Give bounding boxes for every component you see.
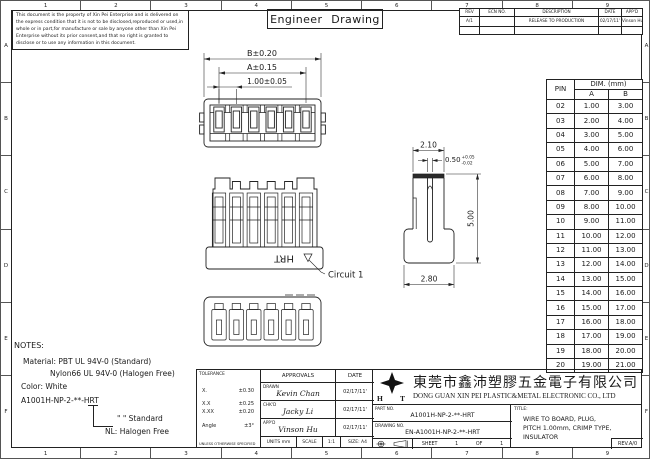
pin-cell: 3.00 <box>609 100 643 114</box>
revision-empty-row <box>460 27 643 35</box>
pin-cell: 9.00 <box>575 215 609 229</box>
grid-label: 6 <box>362 448 432 459</box>
pin-cell: 17.00 <box>609 301 643 315</box>
date-heading: DATE <box>336 370 374 383</box>
pin-row: 109.0011.00 <box>547 215 643 229</box>
pin-cell: 6.00 <box>609 143 643 157</box>
marking-triangle-icon <box>304 254 312 262</box>
tolerance-box: TOLERANCE X.±0.30 X.X±0.25 X.XX±0.20 Ang… <box>196 369 261 448</box>
revision-cell: RELEASE TO PRODUCTION <box>515 17 599 27</box>
tol-label: X.X <box>202 401 210 407</box>
side-view <box>404 174 454 263</box>
grid-label: C <box>1 156 11 229</box>
revision-cell: A/1 <box>460 17 480 27</box>
grid-label: 2 <box>81 1 151 10</box>
drawing-no-label: DRAWING NO. <box>375 423 404 428</box>
part-no-label: PART NO. <box>375 406 394 411</box>
dim-side-top-width: 2.10 <box>420 141 437 150</box>
grid-label: D <box>1 230 11 303</box>
pin-cell: 15.00 <box>609 272 643 286</box>
connector-drawing: HRT Circuit 1 <box>141 41 551 381</box>
pin-cell: 18.00 <box>609 315 643 329</box>
approval-role: APP'D <box>263 420 275 425</box>
title-line: INSULATOR <box>523 434 558 441</box>
part-code-callout-line <box>93 405 113 427</box>
pin-row: 098.0010.00 <box>547 200 643 214</box>
pin-row: 1110.0012.00 <box>547 229 643 243</box>
note-color: Color: White <box>21 382 67 391</box>
pin-row: 032.004.00 <box>547 114 643 128</box>
grid-ruler-left: A B C D E F <box>1 10 11 448</box>
pin-cell: 12.00 <box>609 229 643 243</box>
approval-row-appd: APP'D Vinson Hu <box>261 419 336 437</box>
approval-role: DRAWN <box>263 384 279 389</box>
dim-side-slot-tol-minus: -0.02 <box>462 161 473 167</box>
dim-header: DIM. (mm) <box>575 80 643 90</box>
size-cell: SIZE: A4 <box>341 437 374 448</box>
company-logo-star-icon <box>380 372 404 394</box>
revision-cell <box>480 27 515 35</box>
revision-header-row: REV ECN NO. DESCRIPTION DATE APP'D <box>460 9 643 17</box>
dim-side-bottom-width: 2.80 <box>421 275 438 284</box>
dim-side-slot-tol-plus: +0.05 <box>462 155 475 161</box>
tol-value: ±0.25 <box>239 401 254 407</box>
pin-row: 1918.0020.00 <box>547 344 643 358</box>
pin-cell: 3.00 <box>575 128 609 142</box>
company-box: H T 東莞市鑫沛塑膠五金電子有限公司 DONG GUAN XIN PEI PL… <box>372 369 642 405</box>
units-cell: UNITS mm <box>261 437 297 448</box>
approval-role: CHK'D <box>263 402 276 407</box>
part-no-value: A1001H-NP-2-**-HRT <box>373 412 512 419</box>
revision-cell <box>599 27 622 35</box>
tolerance-row: Angle±3° <box>202 423 254 429</box>
front-view <box>200 99 326 147</box>
title-label: TITLE: <box>514 407 528 412</box>
notes-heading: NOTES: <box>14 341 44 350</box>
tol-value: ±0.20 <box>239 409 254 415</box>
note-option-halogen: NL: Halogen Free <box>105 427 169 436</box>
grid-label: B <box>1 83 11 156</box>
approval-signature: Jacky Li <box>261 407 335 416</box>
pin-cell: 16.00 <box>575 315 609 329</box>
grid-label: 9 <box>573 448 642 459</box>
of-label: OF <box>476 442 483 447</box>
drawing-sheet: 1 2 3 4 5 6 7 8 9 1 2 3 4 5 6 7 8 9 A B … <box>0 0 650 459</box>
pin-cell: 13.00 <box>609 243 643 257</box>
grid-label: E <box>642 303 650 376</box>
pin-cell: 8.00 <box>609 171 643 185</box>
drawing-no-row: DRAWING NO. EN-A1001H-NP-2-**-HRT <box>373 422 512 439</box>
revision-cell <box>622 27 643 35</box>
logo-letter-h: H <box>377 394 383 403</box>
revision-cell: Vinson Hu <box>622 17 643 27</box>
revision-cell <box>480 17 515 27</box>
dim-front-overall: B±0.20 <box>247 49 277 58</box>
tolerance-row: X.±0.30 <box>202 388 254 394</box>
pin-row: 1716.0018.00 <box>547 315 643 329</box>
pin-cell: 19.00 <box>609 330 643 344</box>
pin-row: 065.007.00 <box>547 157 643 171</box>
pin-cell: 16.00 <box>609 287 643 301</box>
page-title: Engineer Drawing <box>267 9 383 29</box>
sheet-cell: SHEET 1 OF 1 <box>413 439 512 449</box>
grid-label: A <box>642 10 650 83</box>
company-name-en: DONG GUAN XIN PEI PLASTIC&METAL ELECTRON… <box>413 392 616 400</box>
pin-cell: 11.00 <box>575 243 609 257</box>
pin-cell: 7.00 <box>609 157 643 171</box>
tol-label: X. <box>202 388 207 394</box>
pin-cell: 4.00 <box>575 143 609 157</box>
tolerance-footer: UNLESS OTHERWISE SPECIFIED <box>199 442 255 446</box>
pin-cell: 7.00 <box>575 186 609 200</box>
logo-letter-t: T <box>400 394 405 403</box>
pin-cell: 5.00 <box>609 128 643 142</box>
pin-cell: 18.00 <box>575 344 609 358</box>
pin-row: 1817.0019.00 <box>547 330 643 344</box>
revision-header: REV <box>460 9 480 17</box>
projection-cell <box>373 439 413 449</box>
tol-label: Angle <box>202 423 216 429</box>
pin-row: 043.005.00 <box>547 128 643 142</box>
marking-text: HRT <box>273 253 294 264</box>
title-line: WIRE TO BOARD, PLUG, <box>523 416 596 423</box>
title-line: PITCH 1.00mm, CRIMP TYPE, <box>523 425 611 432</box>
approvals-box: APPROVALS DATE DRAWN Kevin Chan 02/17/11… <box>260 369 373 448</box>
approval-signature: Vinson Hu <box>261 425 335 434</box>
pin-row: 1312.0014.00 <box>547 258 643 272</box>
tolerance-heading: TOLERANCE <box>199 372 225 377</box>
approval-date: 02/17/11' <box>336 401 374 419</box>
revision-table: REV ECN NO. DESCRIPTION DATE APP'D A/1 R… <box>459 8 643 35</box>
pin-row: 076.008.00 <box>547 171 643 185</box>
pin-row: 1514.0016.00 <box>547 287 643 301</box>
col-a-header: A <box>575 90 609 100</box>
grid-label: 8 <box>503 448 573 459</box>
pin-cell: 10.00 <box>609 200 643 214</box>
approval-date: 02/17/11' <box>336 383 374 401</box>
dim-front-pitch: 1.00±0.05 <box>247 77 287 86</box>
grid-label: F <box>642 376 650 448</box>
pin-cell: 11.00 <box>609 215 643 229</box>
col-b-header: B <box>609 90 643 100</box>
revision-cell <box>460 27 480 35</box>
revision-cell: 02/17/11' <box>599 17 622 27</box>
revision-cell <box>515 27 599 35</box>
pin-cell: 14.00 <box>609 258 643 272</box>
tolerance-row: X.X±0.25 <box>202 401 254 407</box>
revision-row: A/1 RELEASE TO PRODUCTION 02/17/11' Vins… <box>460 17 643 27</box>
revision-header: ECN NO. <box>480 9 515 17</box>
dimensions: B±0.20 A±0.15 1.00±0.05 2.10 0.50 +0.05 … <box>204 49 481 288</box>
pin-header-row: PIN DIM. (mm) <box>547 80 643 90</box>
note-material: Material: PBT UL 94V-0 (Standard) <box>23 357 151 366</box>
pin-row: 054.006.00 <box>547 143 643 157</box>
note-part-code: A1001H-NP-2-**-HRT <box>21 396 99 405</box>
bottom-view <box>204 295 321 346</box>
revision-header: DATE <box>599 9 622 17</box>
tol-value: ±0.30 <box>239 388 254 394</box>
grid-label: A <box>1 10 11 83</box>
grid-label: B <box>642 83 650 156</box>
drawing-title-box: TITLE: WIRE TO BOARD, PLUG, PITCH 1.00mm… <box>510 404 642 448</box>
revision-header: DESCRIPTION <box>515 9 599 17</box>
pin-cell: 9.00 <box>609 186 643 200</box>
company-name-cn: 東莞市鑫沛塑膠五金電子有限公司 <box>413 372 638 392</box>
scale-value: 1:1 <box>323 437 341 448</box>
grid-label: C <box>642 156 650 229</box>
part-no-row: PART NO. A1001H-NP-2-**-HRT <box>373 405 512 422</box>
rev-box: REV.A/0 <box>611 438 643 449</box>
tol-label: X.XX <box>202 409 214 415</box>
pin-cell: 2.00 <box>575 114 609 128</box>
drawing-no-value: EN-A1001H-NP-2-**-HRT <box>373 429 512 436</box>
part-number-box: PART NO. A1001H-NP-2-**-HRT DRAWING NO. … <box>372 404 511 448</box>
scale-label: SCALE <box>297 437 323 448</box>
revision-header: APP'D <box>622 9 643 17</box>
sheet-number: 1 <box>455 442 458 447</box>
pin-row: 021.003.00 <box>547 100 643 114</box>
hrt-marking: HRT <box>273 253 294 264</box>
grid-ruler-right: A B C D E F <box>642 10 650 448</box>
grid-label: 2 <box>81 448 151 459</box>
dim-side-slot: 0.50 <box>445 156 461 164</box>
dim-side-height: 5.00 <box>467 210 476 227</box>
dim-front-inner: A±0.15 <box>247 63 277 72</box>
approval-signature: Kevin Chan <box>261 389 335 398</box>
approval-row-chkd: CHK'D Jacky Li <box>261 401 336 419</box>
pin-cell: 14.00 <box>575 287 609 301</box>
note-material-2: Nylon66 UL 94V-0 (Halogen Free) <box>50 369 175 378</box>
pin-cell: 5.00 <box>575 157 609 171</box>
circuit-label: Circuit 1 <box>328 271 363 281</box>
grid-label: 5 <box>292 448 362 459</box>
grid-label: 3 <box>151 448 221 459</box>
approvals-heading: APPROVALS <box>261 370 336 383</box>
grid-label: F <box>1 376 11 448</box>
pin-cell: 4.00 <box>609 114 643 128</box>
approval-row-drawn: DRAWN Kevin Chan <box>261 383 336 401</box>
approval-date: 02/17/11' <box>336 419 374 437</box>
pin-cell: 1.00 <box>575 100 609 114</box>
sheet-label: SHEET <box>422 442 438 447</box>
third-angle-projection-icon <box>376 440 410 448</box>
pin-cell: 17.00 <box>575 330 609 344</box>
tolerance-row: X.XX±0.20 <box>202 409 254 415</box>
pin-cell: 6.00 <box>575 171 609 185</box>
grid-label: 1 <box>11 1 81 10</box>
grid-ruler-bottom: 1 2 3 4 5 6 7 8 9 <box>11 448 642 459</box>
pin-cell: 8.00 <box>575 200 609 214</box>
grid-label: E <box>1 303 11 376</box>
grid-label: D <box>642 230 650 303</box>
pin-cell: 10.00 <box>575 229 609 243</box>
grid-label: 1 <box>11 448 81 459</box>
mating-face-view: HRT Circuit 1 <box>206 178 363 281</box>
pin-cell: 15.00 <box>575 301 609 315</box>
tol-value: ±3° <box>244 423 254 429</box>
pin-cell: 12.00 <box>575 258 609 272</box>
pin-cell: 13.00 <box>575 272 609 286</box>
grid-label: 3 <box>151 1 221 10</box>
grid-label: 7 <box>432 448 502 459</box>
pin-row: 1615.0017.00 <box>547 301 643 315</box>
pin-row: 087.009.00 <box>547 186 643 200</box>
grid-label: 4 <box>222 448 292 459</box>
pin-cell: 20.00 <box>609 344 643 358</box>
pin-row: 1211.0013.00 <box>547 243 643 257</box>
of-number: 1 <box>500 442 503 447</box>
pin-row: 1413.0015.00 <box>547 272 643 286</box>
pin-dimension-table: PIN DIM. (mm) A B 021.003.00 032.004.00 … <box>546 79 643 373</box>
note-option-standard: " " Standard <box>117 414 163 423</box>
